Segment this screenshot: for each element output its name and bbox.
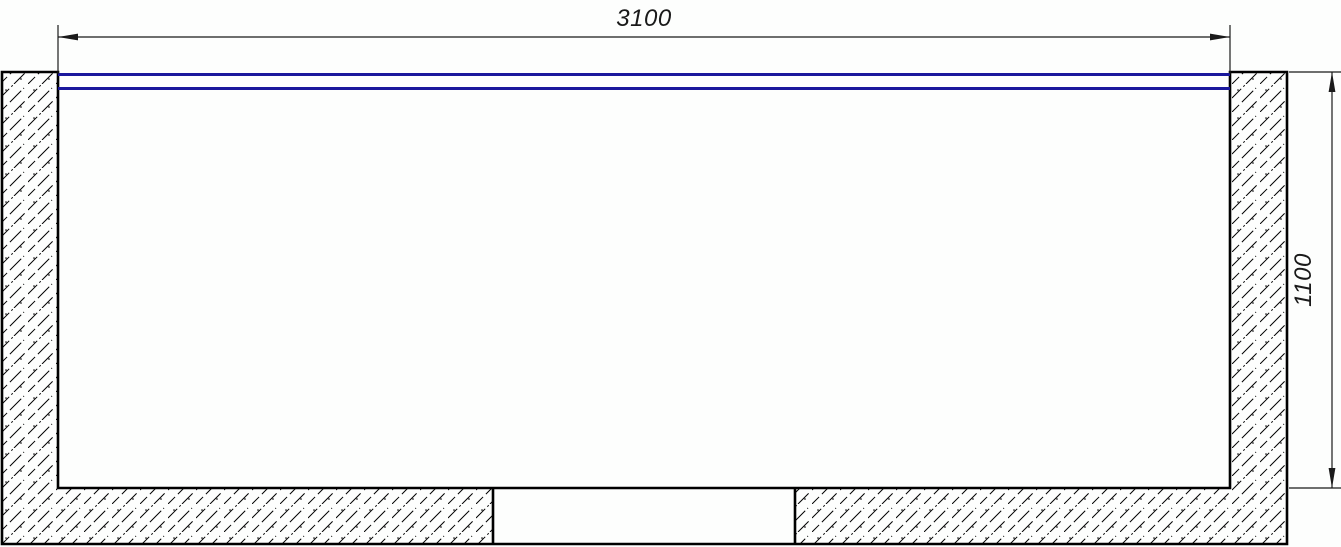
vertical-dimension-label: 1100 — [1290, 253, 1317, 307]
basin-cross-section-drawing: 3100 1100 — [0, 0, 1341, 547]
horizontal-dimension-label: 3100 — [616, 5, 672, 32]
vertical-dimension-arrow-bottom — [1329, 468, 1336, 488]
hatched-structure-section — [2, 72, 1287, 544]
technical-drawing-canvas: 3100 1100 — [0, 0, 1341, 547]
horizontal-dimension — [58, 25, 1230, 74]
horizontal-dimension-arrow-left — [58, 34, 78, 41]
vertical-dimension-arrow-top — [1329, 72, 1336, 92]
horizontal-dimension-arrow-right — [1210, 34, 1230, 41]
